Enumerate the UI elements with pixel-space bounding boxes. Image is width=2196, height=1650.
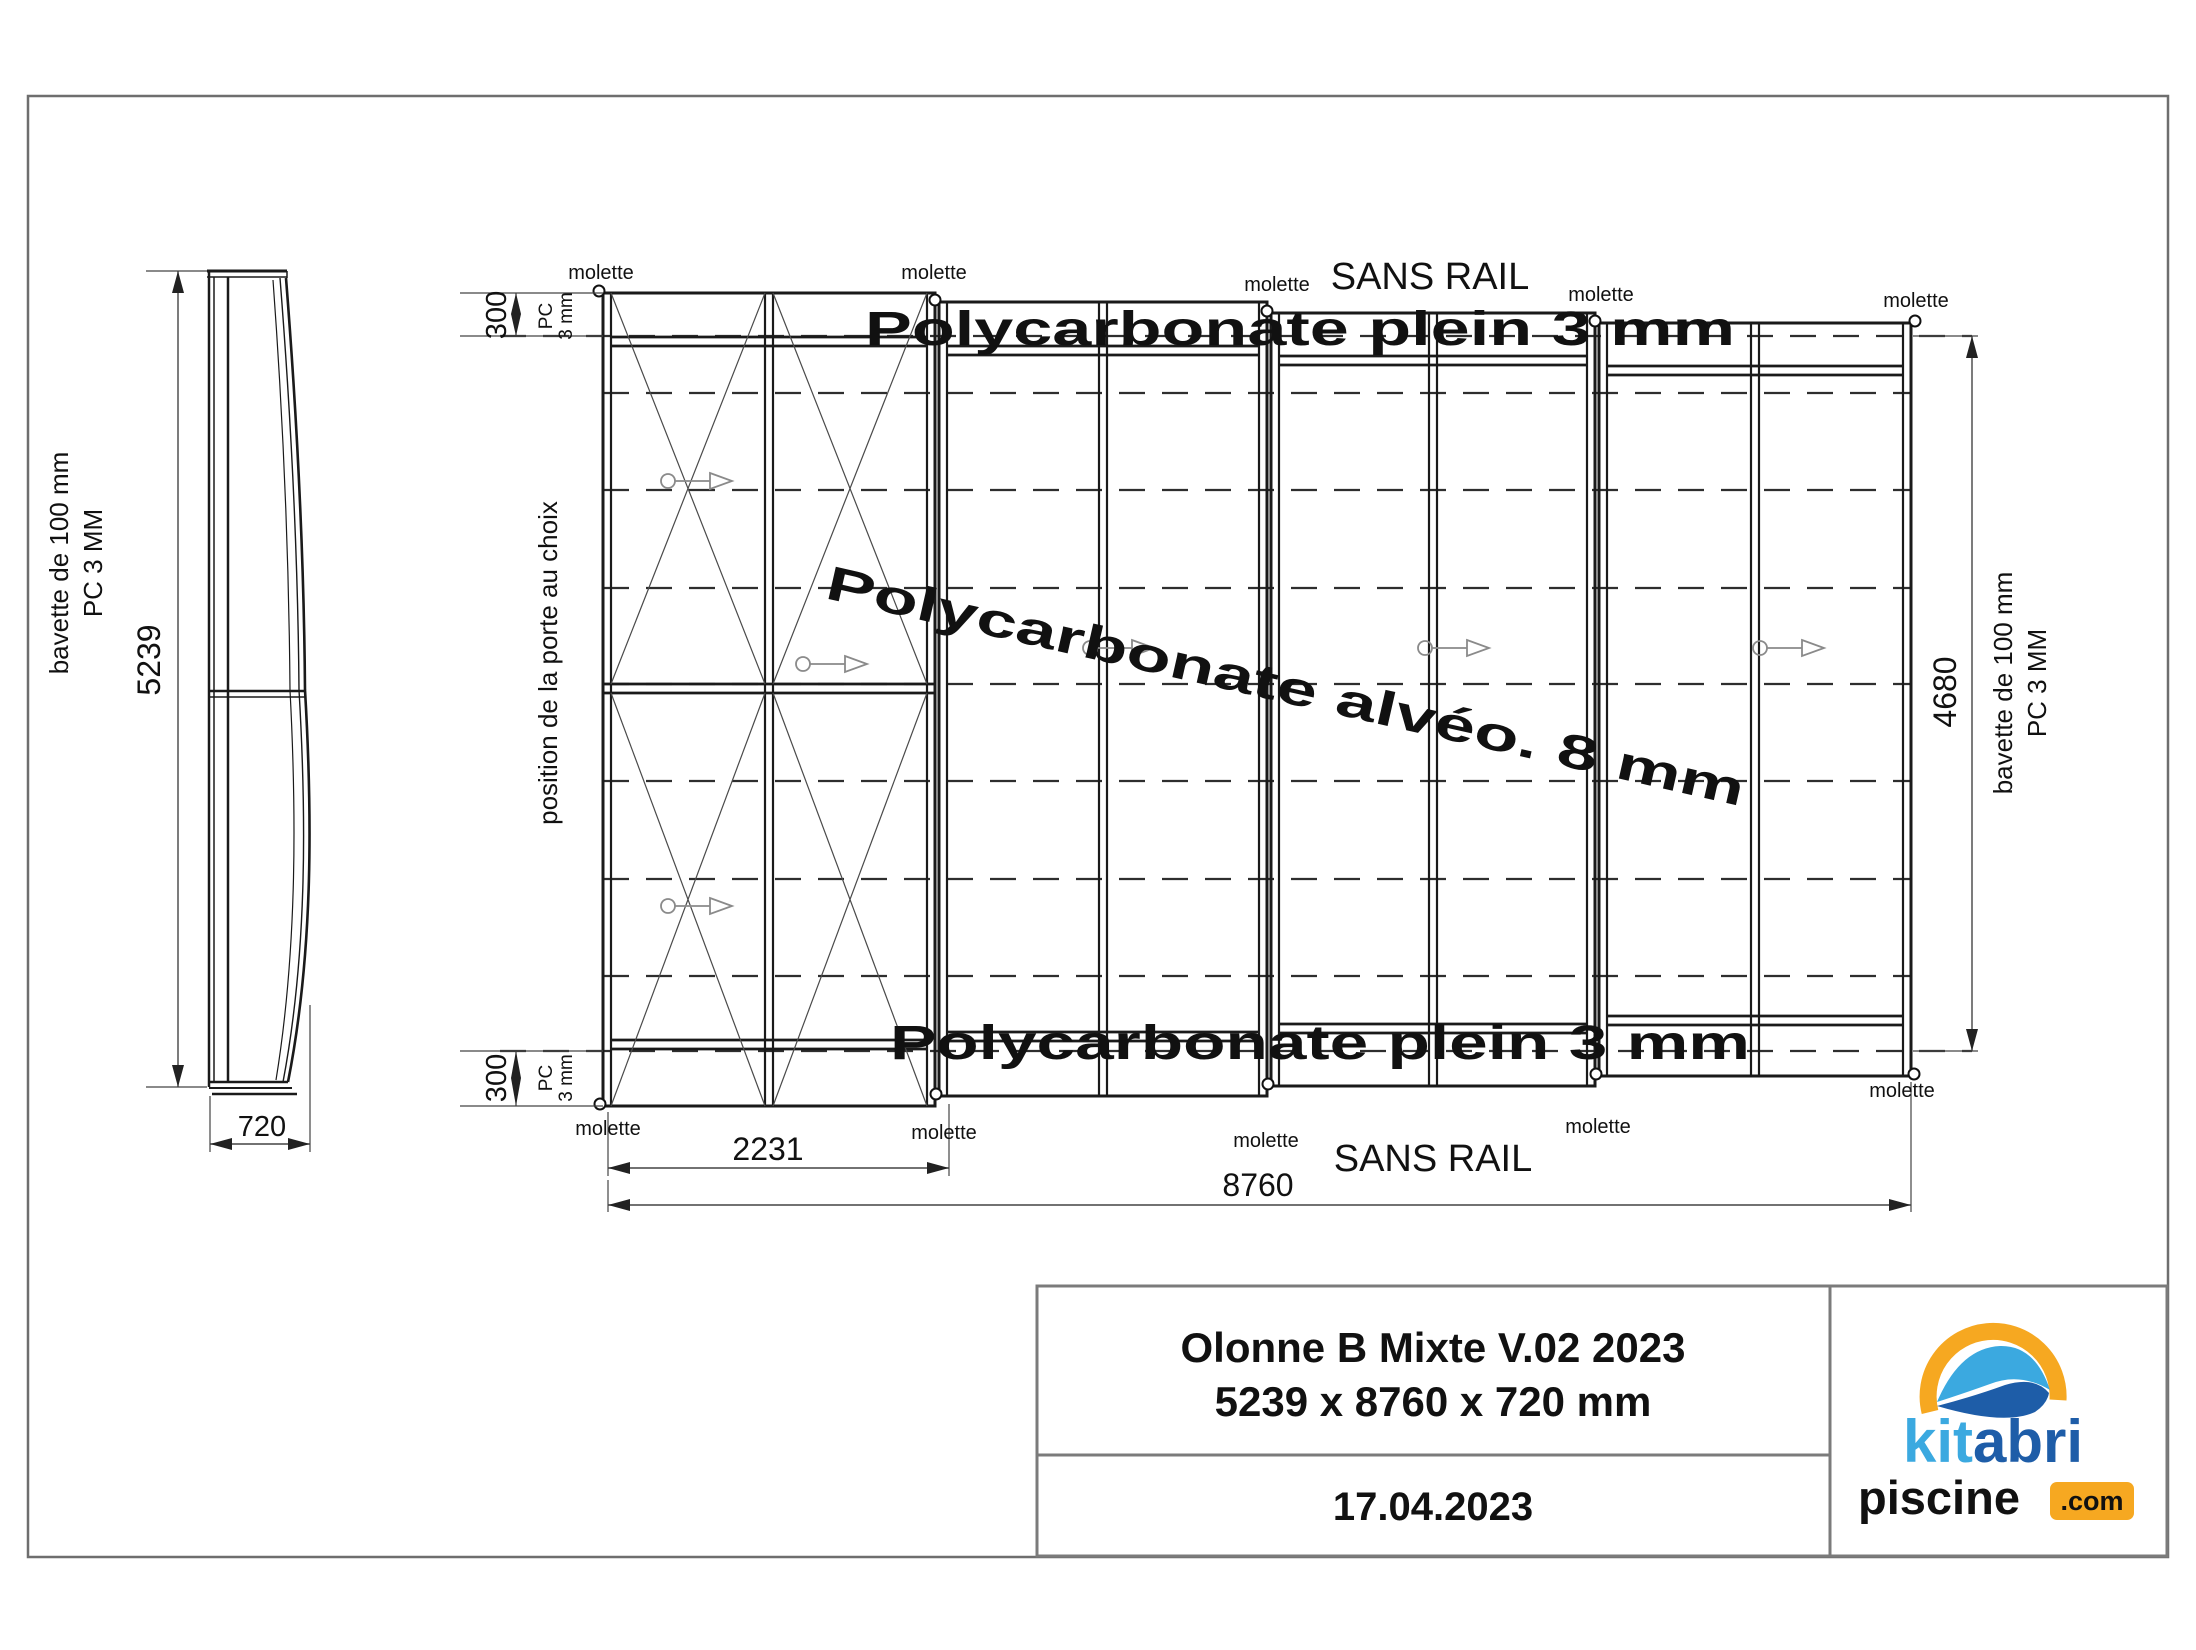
- dim-300-top-label: 300: [481, 291, 513, 339]
- door-position-note: position de la porte au choix: [533, 501, 563, 825]
- side-profile-view: [207, 270, 310, 1094]
- molette-label: molette: [568, 262, 634, 284]
- logo-piscine: piscine: [1858, 1471, 2020, 1524]
- title-block-date: 17.04.2023: [1333, 1485, 1533, 1529]
- molette-label: molette: [911, 1122, 977, 1144]
- glazing-roof-note: Polycarbonate alvéo. 8 mm: [821, 557, 1749, 817]
- pc-note-bottom-line1: PC: [536, 1065, 557, 1091]
- glazing-edge-bottom: Polycarbonate plein 3 mm: [890, 1017, 1750, 1070]
- dim-2231-label: 2231: [732, 1131, 803, 1167]
- title-block-title: Olonne B Mixte V.02 2023: [1180, 1324, 1685, 1371]
- dim-300-bottom-label: 300: [481, 1054, 513, 1102]
- sans-rail-bottom: SANS RAIL: [1334, 1138, 1533, 1180]
- door-position-cross-marks: [611, 293, 927, 1106]
- side-bavette-note-line1: bavette de 100 mm: [44, 452, 74, 675]
- logo-com: .com: [2060, 1486, 2123, 1516]
- side-bavette-note-line2: PC 3 MM: [78, 509, 108, 617]
- molette-label: molette: [1869, 1080, 1935, 1102]
- dim-720-label: 720: [238, 1111, 286, 1143]
- molette-label: molette: [1883, 290, 1949, 312]
- glazing-edge-top: Polycarbonate plein 3 mm: [865, 303, 1735, 356]
- title-block-dimensions: 5239 x 8760 x 720 mm: [1215, 1378, 1652, 1425]
- molette-label: molette: [1565, 1116, 1631, 1138]
- kitabripiscine-logo: kitabri piscine .com: [1858, 1331, 2134, 1524]
- molette-label: molette: [901, 262, 967, 284]
- molette-label: molette: [1568, 284, 1634, 306]
- drawing-sheet: 5239 720 bavette de 100 mm PC 3 MM: [0, 0, 2196, 1650]
- sans-rail-top: SANS RAIL: [1331, 256, 1530, 298]
- molette-label: molette: [1233, 1130, 1299, 1152]
- dim-4680-label: 4680: [1927, 656, 1963, 727]
- pc-note-top-line1: PC: [536, 303, 557, 329]
- logo-wordmark: kitabri: [1903, 1408, 2083, 1475]
- pc-note-top-line2: 3 mm: [556, 292, 577, 340]
- dim-5239-label: 5239: [131, 624, 167, 695]
- molette-label: molette: [575, 1118, 641, 1140]
- right-bavette-note-line1: bavette de 100 mm: [1988, 572, 2018, 795]
- dim-8760-label: 8760: [1222, 1167, 1293, 1203]
- pc-note-bottom-line2: 3 mm: [556, 1054, 577, 1102]
- molette-label: molette: [1244, 274, 1310, 296]
- right-bavette-note-line2: PC 3 MM: [2022, 629, 2052, 737]
